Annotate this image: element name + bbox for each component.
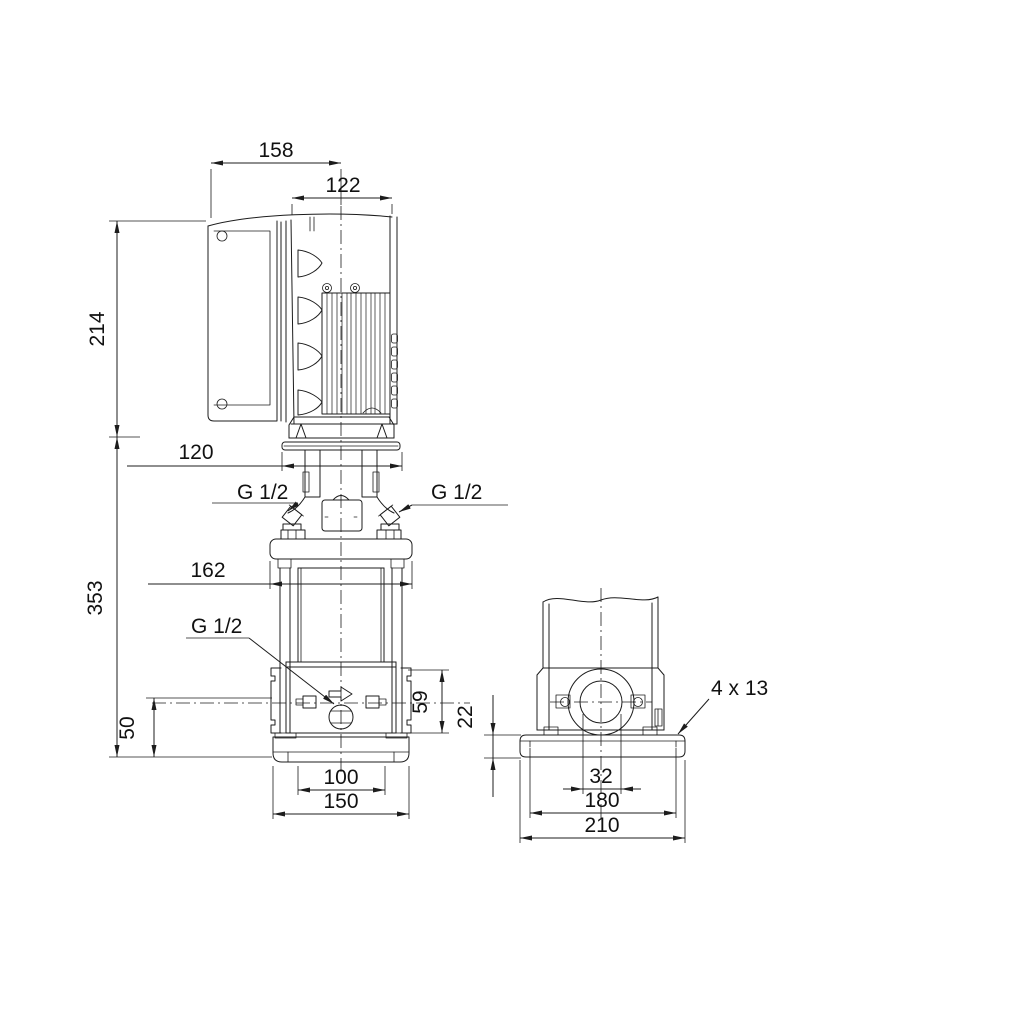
port-bolt-lug bbox=[631, 695, 645, 708]
screw-icon bbox=[351, 284, 360, 293]
label-gauge-port-left: G 1/2 bbox=[237, 481, 288, 504]
dim-pump-height-label: 353 bbox=[84, 580, 107, 615]
dim-port-bore-label: 32 bbox=[589, 765, 612, 788]
label-gauge-port-right: G 1/2 bbox=[431, 481, 482, 504]
mounting-hole-marks bbox=[530, 741, 676, 747]
dim-base-depth-label: 210 bbox=[584, 814, 619, 837]
plug-bolt bbox=[303, 696, 316, 708]
dim-motor-height-label: 214 bbox=[86, 311, 109, 346]
dim-port-flange-height-label: 59 bbox=[409, 690, 432, 713]
label-drain-port: G 1/2 bbox=[191, 615, 242, 638]
dim-bolt-hole-spacing-label: 180 bbox=[584, 789, 619, 812]
technical-drawing: 158 122 214 353 120 162 50 59 bbox=[0, 0, 1024, 1024]
dim-coupling-width-label: 120 bbox=[178, 441, 213, 464]
dim-control-box-width-label: 158 bbox=[258, 139, 293, 162]
dim-head-flange-width-label: 162 bbox=[190, 559, 225, 582]
dim-port-center-height-label: 50 bbox=[116, 716, 139, 739]
dim-base-slot-width-label: 100 bbox=[323, 766, 358, 789]
screw-icon bbox=[323, 284, 332, 293]
coupling-guard bbox=[322, 500, 362, 531]
plug-bolt bbox=[366, 696, 379, 708]
control-box bbox=[208, 221, 286, 422]
front-view-dimensions: 158 122 214 353 120 162 50 59 bbox=[84, 139, 508, 819]
motor-top-outline bbox=[208, 214, 392, 226]
flow-arrow-icon bbox=[329, 687, 352, 701]
dim-base-plate-thickness-label: 22 bbox=[454, 705, 477, 728]
nameplate-tab bbox=[655, 709, 662, 726]
motor-cooling-fins bbox=[291, 217, 322, 424]
break-line bbox=[543, 597, 658, 602]
pump-dimensional-drawing: 158 122 214 353 120 162 50 59 bbox=[0, 0, 1024, 1024]
dim-motor-width-label: 122 bbox=[325, 174, 360, 197]
dim-base-width-label: 150 bbox=[323, 790, 358, 813]
base-plate bbox=[520, 735, 685, 757]
motor-heat-sink bbox=[322, 216, 398, 424]
label-mounting-holes: 4 x 13 bbox=[711, 677, 768, 700]
